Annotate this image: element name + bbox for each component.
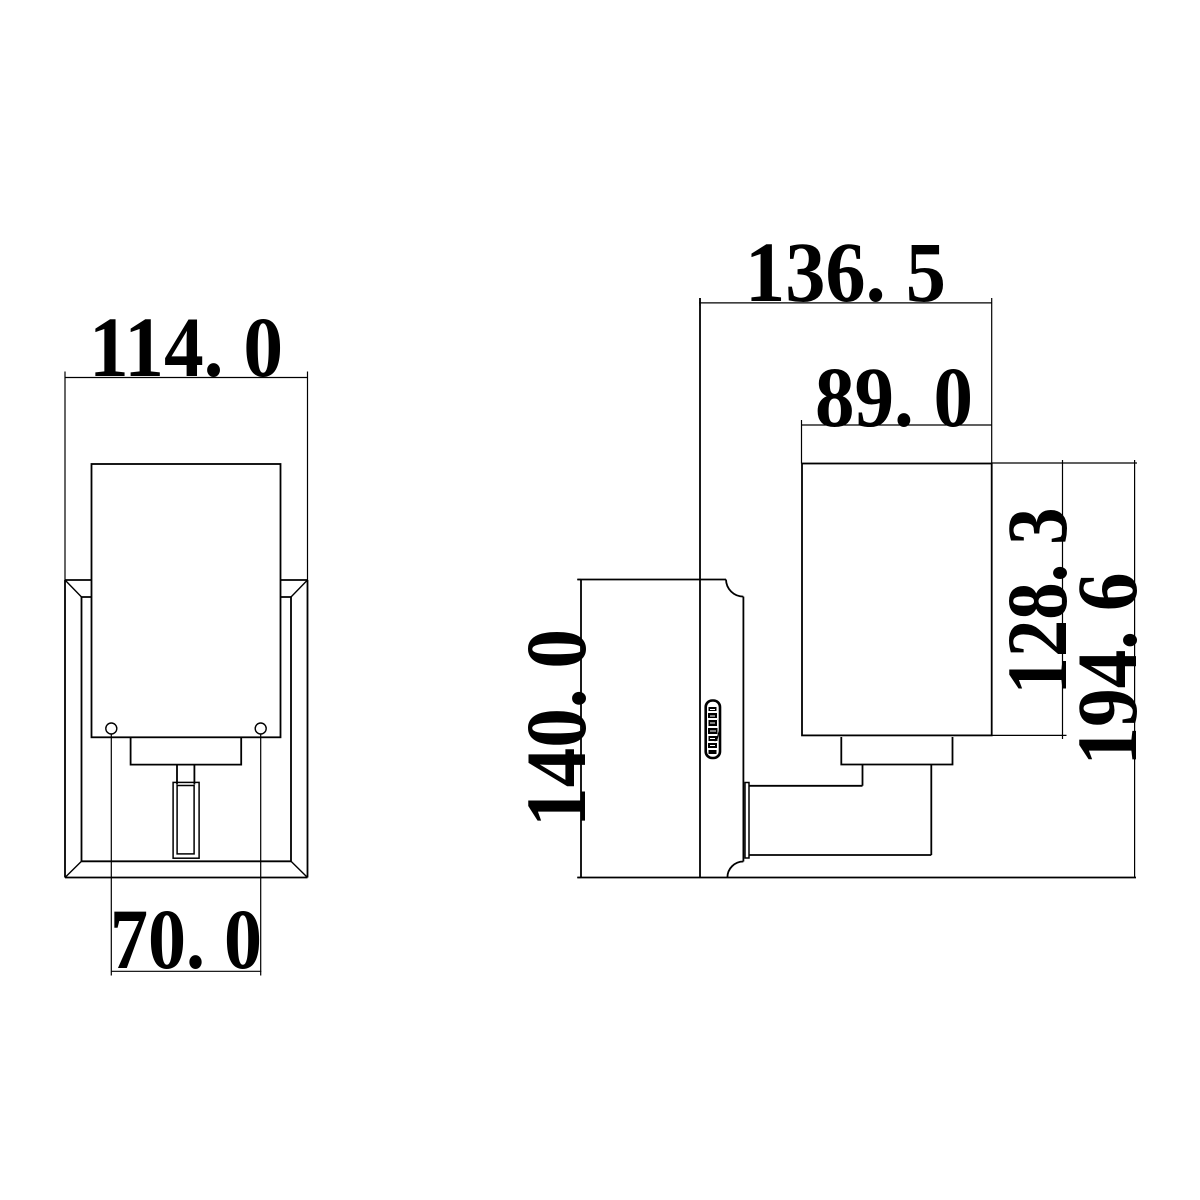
svg-text:140. 0: 140. 0 — [508, 629, 604, 827]
svg-text:89. 0: 89. 0 — [815, 349, 973, 445]
svg-text:114. 0: 114. 0 — [89, 299, 283, 395]
svg-text:70. 0: 70. 0 — [110, 891, 262, 987]
svg-text:194. 6: 194. 6 — [1059, 573, 1155, 766]
svg-text:136. 5: 136. 5 — [745, 224, 946, 320]
